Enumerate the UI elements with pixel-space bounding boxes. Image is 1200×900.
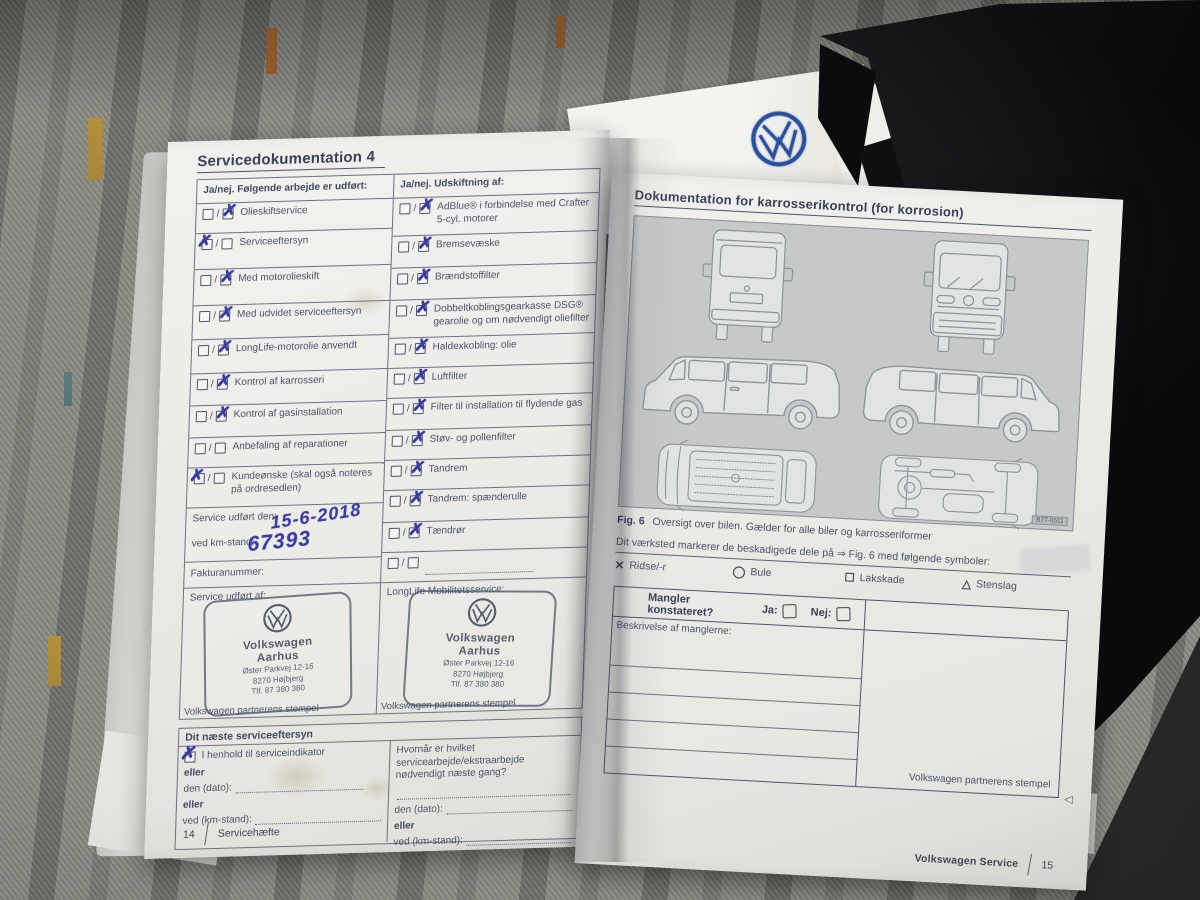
slash-separator: / xyxy=(407,404,410,413)
slash-separator: / xyxy=(411,274,414,283)
checklist-row: / ✗ ✗ Med udvidet serviceeftersyn xyxy=(192,301,389,341)
figure-number: Fig. 6 xyxy=(617,514,645,527)
checkbox-ja xyxy=(396,305,407,316)
checkbox-pair: / ✗ ✗ xyxy=(397,273,428,285)
checklist-label xyxy=(425,559,533,575)
pen-x-mark: ✗ xyxy=(414,297,432,319)
checkbox-ja xyxy=(197,379,208,390)
right-page-footer: Volkswagen Service 15 xyxy=(914,847,1054,876)
indicator-option: ✗ I henhold til serviceindikator xyxy=(184,745,383,763)
checkbox-pair: / ✗ ✗ xyxy=(396,305,427,317)
dotted-line xyxy=(447,798,573,814)
service-by-label: Service udført af: xyxy=(190,590,266,603)
checkbox-ja xyxy=(395,343,406,354)
left-page-footer: 14 Servicehæfte xyxy=(183,821,280,846)
slash-separator: / xyxy=(408,374,411,383)
checkbox-pair: / ✗ ✗ xyxy=(196,410,227,422)
slash-separator: / xyxy=(212,346,215,355)
checkbox-pair: / ✗ ✗ xyxy=(201,238,232,250)
checkbox-pair: / ✗ ✗ xyxy=(389,527,420,539)
nej-checkbox xyxy=(836,607,850,621)
nej-label: Nej: xyxy=(810,606,831,619)
checkbox-pair: / ✗ ✗ xyxy=(399,203,430,215)
slash-separator: / xyxy=(409,344,412,353)
damage-symbol: ✕ Ridse/-r xyxy=(614,558,733,578)
stamp-street: Øster Parkvej 12-16 xyxy=(406,659,550,670)
pen-x-mark: ✗ xyxy=(413,335,431,357)
pen-x-mark: ✗ xyxy=(410,427,428,449)
checkbox-pair: / ✗ ✗ xyxy=(195,443,226,455)
page-title: Servicedokumentation 4 xyxy=(197,148,385,173)
checklist-row: / ✗ ✗ Dobbeltkoblingsgearkasse DSG® gear… xyxy=(389,295,595,339)
defects-question: Mangler konstateret? xyxy=(647,591,746,620)
stamp-brand: Volkswagen xyxy=(408,632,553,646)
slash-separator: / xyxy=(404,496,407,505)
checklist-label: Olieskiftservice xyxy=(240,205,308,219)
checkbox-ja xyxy=(195,443,206,454)
pen-x-mark: ✗ xyxy=(179,742,199,767)
checkbox-ja xyxy=(390,496,401,507)
work-column: Ja/nej. Følgende arbejde er udført: / ✗ … xyxy=(180,175,395,719)
next-service-question: Hvornår er hvilket servicearbejde/ekstra… xyxy=(395,740,574,783)
service-table: Ja/nej. Følgende arbejde er udført: / ✗ … xyxy=(179,168,601,720)
booklet-name: Volkswagen Service xyxy=(914,852,1018,870)
damage-symbol-glyph: ◯ xyxy=(732,564,746,579)
checklist-label: Haldexkobling: olie xyxy=(432,339,516,354)
checklist-label: Brændstoffilter xyxy=(435,270,500,284)
damage-symbol-glyph: ✕ xyxy=(614,558,624,573)
figure-code: B7T-0511 xyxy=(1032,515,1068,526)
van-rear-view xyxy=(694,224,800,347)
pen-x-mark: ✗ xyxy=(415,265,433,287)
damage-symbol-label: Stenslag xyxy=(976,578,1017,592)
checklist-label: Filter til installation til flydende gas xyxy=(430,398,582,415)
checklist-label: Tændrør xyxy=(426,525,465,539)
checkbox-ja xyxy=(394,373,405,384)
defects-description-column: Beskrivelse af manglerne: xyxy=(605,617,865,786)
checklist-label: Kundeønske (skal også noteres på ordrese… xyxy=(231,467,380,496)
eller-label: eller xyxy=(183,794,382,811)
checklist-label: Luftfilter xyxy=(431,371,467,385)
service-stamp-cell: Service udført af: Volkswagen Aarhus Øst… xyxy=(180,583,380,719)
checklist-label: LongLife-motorolie anvendt xyxy=(236,340,358,356)
handwritten-km: 67393 xyxy=(247,527,311,557)
checkbox-pair: / ✗ ✗ xyxy=(391,465,422,477)
checklist-label: Bremsevæske xyxy=(436,238,500,252)
replacement-checklist: / ✗ ✗ AdBlue® i forbindelse med Crafter … xyxy=(381,193,599,583)
checkbox-nej xyxy=(214,443,225,454)
checklist-row: / ✗ ✗ AdBlue® i forbindelse med Crafter … xyxy=(393,193,599,237)
slash-separator: / xyxy=(208,474,211,483)
checklist-row: / ✗ ✗ Med motorolieskift xyxy=(194,265,391,307)
damage-symbol: △ Stenslag xyxy=(962,577,1017,594)
pen-x-mark: ✗ xyxy=(408,487,426,509)
stamp-phone: Tlf. 87 380 380 xyxy=(405,680,549,691)
checklist-label: Kontrol af gasinstallation xyxy=(233,406,342,422)
stamp-city: Aarhus xyxy=(407,645,552,659)
checklist-label: Kontrol af karrosseri xyxy=(234,375,324,390)
checkbox-pair: / ✗ ✗ xyxy=(194,473,225,485)
pen-x-mark: ✗ xyxy=(215,371,233,393)
checkbox-pair: / ✗ ✗ xyxy=(388,557,419,569)
slash-separator: / xyxy=(405,466,408,475)
checkbox-ja xyxy=(198,345,209,356)
checklist-label: Tandrem: spænderulle xyxy=(427,491,527,506)
damage-symbol-glyph: ☐ xyxy=(844,570,855,585)
checklist-label: Med udvidet serviceeftersyn xyxy=(237,306,362,322)
defects-header-empty-cell xyxy=(865,615,1067,626)
slash-separator: / xyxy=(214,276,217,285)
slash-separator: / xyxy=(210,412,213,421)
checkbox-nej xyxy=(221,238,232,249)
checkbox-pair: / ✗ ✗ xyxy=(197,378,228,390)
checkbox-pair: / ✗ ✗ xyxy=(198,344,229,356)
pen-x-mark: ✗ xyxy=(219,267,237,289)
stamp-caption: Volkswagen partnerens stempel xyxy=(909,772,1051,791)
replacement-column: Ja/nej. Udskiftning af: / ✗ ✗ AdBlue® i … xyxy=(377,169,600,713)
date-label: den (dato): xyxy=(183,782,232,794)
slash-separator: / xyxy=(211,380,214,389)
ja-label: Ja: xyxy=(762,603,779,616)
pen-x-mark: ✗ xyxy=(409,457,427,479)
defects-table: Mangler konstateret? Ja: Nej: Beskrivels… xyxy=(603,586,1068,798)
slash-separator: / xyxy=(412,242,415,251)
checkbox-ja xyxy=(202,209,213,220)
checkbox-pair: / ✗ ✗ xyxy=(202,208,233,220)
van-top-view xyxy=(631,437,843,520)
checkbox-ja xyxy=(393,404,404,415)
dotted-line xyxy=(467,830,572,845)
pen-x-mark: ✗ xyxy=(411,395,429,417)
checkbox-ja xyxy=(398,241,409,252)
checklist-row: / ✗ ✗ LongLife-motorolie anvendt xyxy=(191,335,388,375)
checkbox-pair: / ✗ ✗ xyxy=(392,435,423,447)
work-checklist: / ✗ ✗ Olieskiftservice / ✗ ✗ Serviceefte… xyxy=(187,199,393,509)
van-side-left-view xyxy=(633,340,850,447)
checklist-label: AdBlue® i forbindelse med Crafter 5-cyl.… xyxy=(437,197,595,226)
slash-separator: / xyxy=(406,436,409,445)
checklist-label: Anbefaling af reparationer xyxy=(232,438,347,454)
checkbox-pair: / ✗ ✗ xyxy=(200,274,231,286)
checkbox-nej xyxy=(407,557,418,568)
photo-of-service-booklet: { "colors": { "ink": "#3b3ca2", "print":… xyxy=(0,0,1200,900)
next-service-right: Hvornår er hvilket servicearbejde/ekstra… xyxy=(387,736,580,842)
checklist-label: Dobbeltkoblingsgearkasse DSG® gearolie o… xyxy=(433,299,591,328)
vw-logo-icon xyxy=(466,597,498,627)
checkbox-ja xyxy=(397,273,408,284)
checklist-label: Støv- og pollenfilter xyxy=(429,431,516,446)
dotted-line xyxy=(397,784,571,799)
dotted-line xyxy=(236,778,364,794)
vehicle-figure-panel: B7T-0511 xyxy=(618,215,1089,531)
eller-label: eller xyxy=(394,815,572,831)
checkbox-ja xyxy=(199,311,210,322)
van-side-right-view xyxy=(854,352,1071,459)
checkbox-ja xyxy=(399,203,410,214)
slash-separator: / xyxy=(403,529,406,538)
footer-divider xyxy=(204,823,209,845)
pen-x-mark: ✗ xyxy=(407,519,425,541)
checkbox-pair: / ✗ ✗ xyxy=(393,403,424,415)
slash-separator: / xyxy=(402,559,405,568)
checkbox-ja xyxy=(389,528,400,539)
checkbox-ja xyxy=(388,558,399,569)
slash-separator: / xyxy=(213,312,216,321)
eller-label: eller xyxy=(184,762,383,779)
defects-stamp-cell: Volkswagen partnerens stempel xyxy=(856,630,1066,797)
footer-divider xyxy=(1027,854,1032,876)
km-label: ved (km-stand): xyxy=(393,835,463,848)
checkbox-pair: / ✗ ✗ xyxy=(394,373,425,385)
pen-x-mark: ✗ xyxy=(216,337,234,359)
checkbox-pair: / ✗ ✗ xyxy=(395,343,426,355)
slash-separator: / xyxy=(215,240,218,249)
pen-x-mark: ✗ xyxy=(417,233,435,255)
damage-symbol: ◯ Bule xyxy=(732,564,845,584)
page-number: 14 xyxy=(183,829,195,841)
slash-separator: / xyxy=(209,444,212,453)
checkbox-pair: / ✗ ✗ xyxy=(398,241,429,253)
damage-symbol-label: Ridse/-r xyxy=(629,560,666,574)
pen-x-mark: ✗ xyxy=(418,195,436,217)
vw-logo-icon xyxy=(746,106,812,172)
longlife-stamp-cell: LongLife Mobilitetsservice: Volkswagen A… xyxy=(377,577,586,713)
damage-symbol-label: Lakskade xyxy=(859,572,905,586)
pen-x-mark: ✗ xyxy=(214,403,232,425)
date-label: den (dato): xyxy=(394,803,443,815)
checkbox-ja xyxy=(200,275,211,286)
service-date-cell: Service udført den: ved km-stand: 15-6-2… xyxy=(185,503,383,563)
checkbox-ja xyxy=(391,466,402,477)
checkbox-pair: / ✗ ✗ xyxy=(199,310,230,322)
left-page: Servicedokumentation 4 Ja/nej. Følgende … xyxy=(144,130,610,859)
checkbox-pair: / ✗ ✗ xyxy=(390,495,421,507)
damage-symbol: ☐ Lakskade xyxy=(844,570,963,590)
ja-checkbox xyxy=(783,604,797,618)
right-page: Dokumentation for karrosserikontrol (for… xyxy=(575,172,1124,891)
vw-logo-icon xyxy=(262,602,292,634)
damage-symbol-glyph: △ xyxy=(962,577,972,591)
pen-x-mark: ✗ xyxy=(221,200,239,222)
van-front-view xyxy=(916,236,1022,359)
checklist-label: Tandrem xyxy=(428,463,467,477)
pen-x-mark: ✗ xyxy=(412,365,430,387)
pen-x-mark: ✗ xyxy=(217,303,235,325)
slash-separator: / xyxy=(413,204,416,213)
damage-symbol-label: Bule xyxy=(750,566,772,579)
checklist-row: / ✗ ✗ Serviceeftersyn xyxy=(195,229,392,271)
dealer-stamp: Volkswagen Aarhus Øster Parkvej 12-16 82… xyxy=(203,591,352,717)
booklet-name: Servicehæfte xyxy=(218,826,280,840)
stamp-zip: 8270 Højbjerg xyxy=(405,669,549,680)
slash-separator: / xyxy=(410,306,413,315)
dealer-stamp: Volkswagen Aarhus Øster Parkvej 12-16 82… xyxy=(402,590,557,707)
checkbox-nej xyxy=(213,473,224,484)
slash-separator: / xyxy=(216,210,219,219)
page-edge-marker: ◁ xyxy=(1064,792,1073,805)
indicator-option-label: I henhold til serviceindikator xyxy=(201,747,325,761)
checkbox-ja xyxy=(196,411,207,422)
checkbox-ja xyxy=(392,436,403,447)
checklist-label: Serviceeftersyn xyxy=(239,235,308,249)
page-number: 15 xyxy=(1041,859,1053,872)
checklist-label: Med motorolieskift xyxy=(238,271,320,286)
